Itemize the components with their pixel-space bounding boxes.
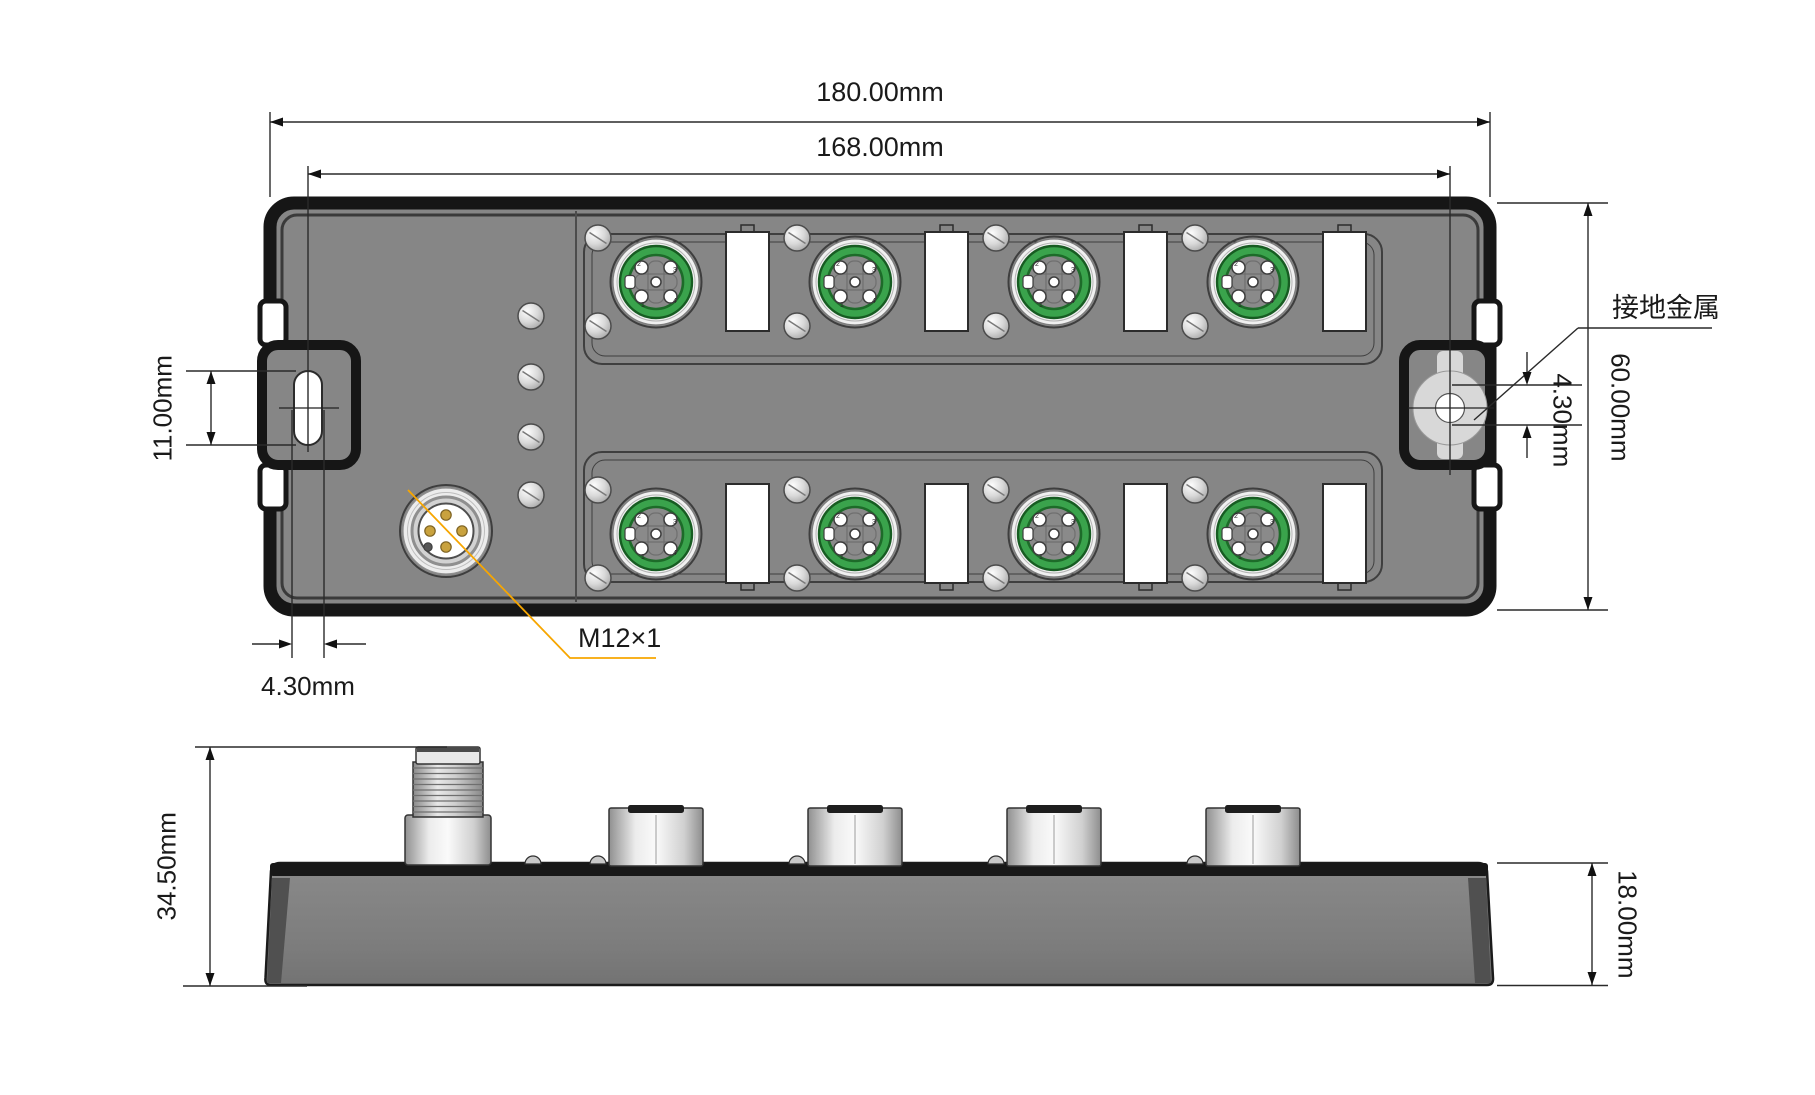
dimension-drawing-page: 2 3 4 1: [0, 0, 1815, 1095]
label-window: [726, 484, 769, 590]
mount-notch: [1474, 465, 1500, 509]
side-view: [265, 747, 1493, 985]
housing-side-view: [265, 863, 1493, 985]
dim-ground-hole: 4.30mm: [1548, 370, 1577, 470]
label-window: [1124, 225, 1167, 331]
label-window: [1323, 225, 1366, 331]
label-window: [925, 225, 968, 331]
label-window: [1124, 484, 1167, 590]
m12-port-6: [810, 489, 901, 580]
mount-notch: [1474, 301, 1500, 345]
label-window: [726, 225, 769, 331]
technical-drawing: 2 3 4 1: [0, 0, 1815, 1095]
dim-overall-depth: 60.00mm: [1606, 342, 1635, 472]
m12-port-5: [611, 489, 702, 580]
ground-metal-label: 接地金属: [1612, 294, 1742, 324]
m12-port-3: [1009, 237, 1100, 328]
dim-body-height: 18.00mm: [1613, 858, 1642, 990]
dim-overall-width: 180.00mm: [780, 78, 980, 108]
mount-ear-right: [1404, 345, 1494, 465]
m12-port-1: [611, 237, 702, 328]
dim-slot-length: 11.00mm: [149, 342, 178, 474]
mount-notch: [260, 465, 286, 509]
top-view: [260, 203, 1500, 610]
m12-port-7: [1009, 489, 1100, 580]
m12-port-2: [810, 237, 901, 328]
dim-hole-span: 168.00mm: [780, 133, 980, 163]
dim-slot-width: 4.30mm: [238, 672, 378, 701]
mount-notch: [260, 301, 286, 345]
m12-port-8: [1208, 489, 1299, 580]
side-power-connector: [405, 747, 491, 865]
label-window: [925, 484, 968, 590]
dim-total-height: 34.50mm: [153, 800, 182, 932]
thread-size-label: M12×1: [578, 624, 698, 654]
label-window: [1323, 484, 1366, 590]
m12-port-4: [1208, 237, 1299, 328]
mount-ear-left: [262, 345, 356, 465]
